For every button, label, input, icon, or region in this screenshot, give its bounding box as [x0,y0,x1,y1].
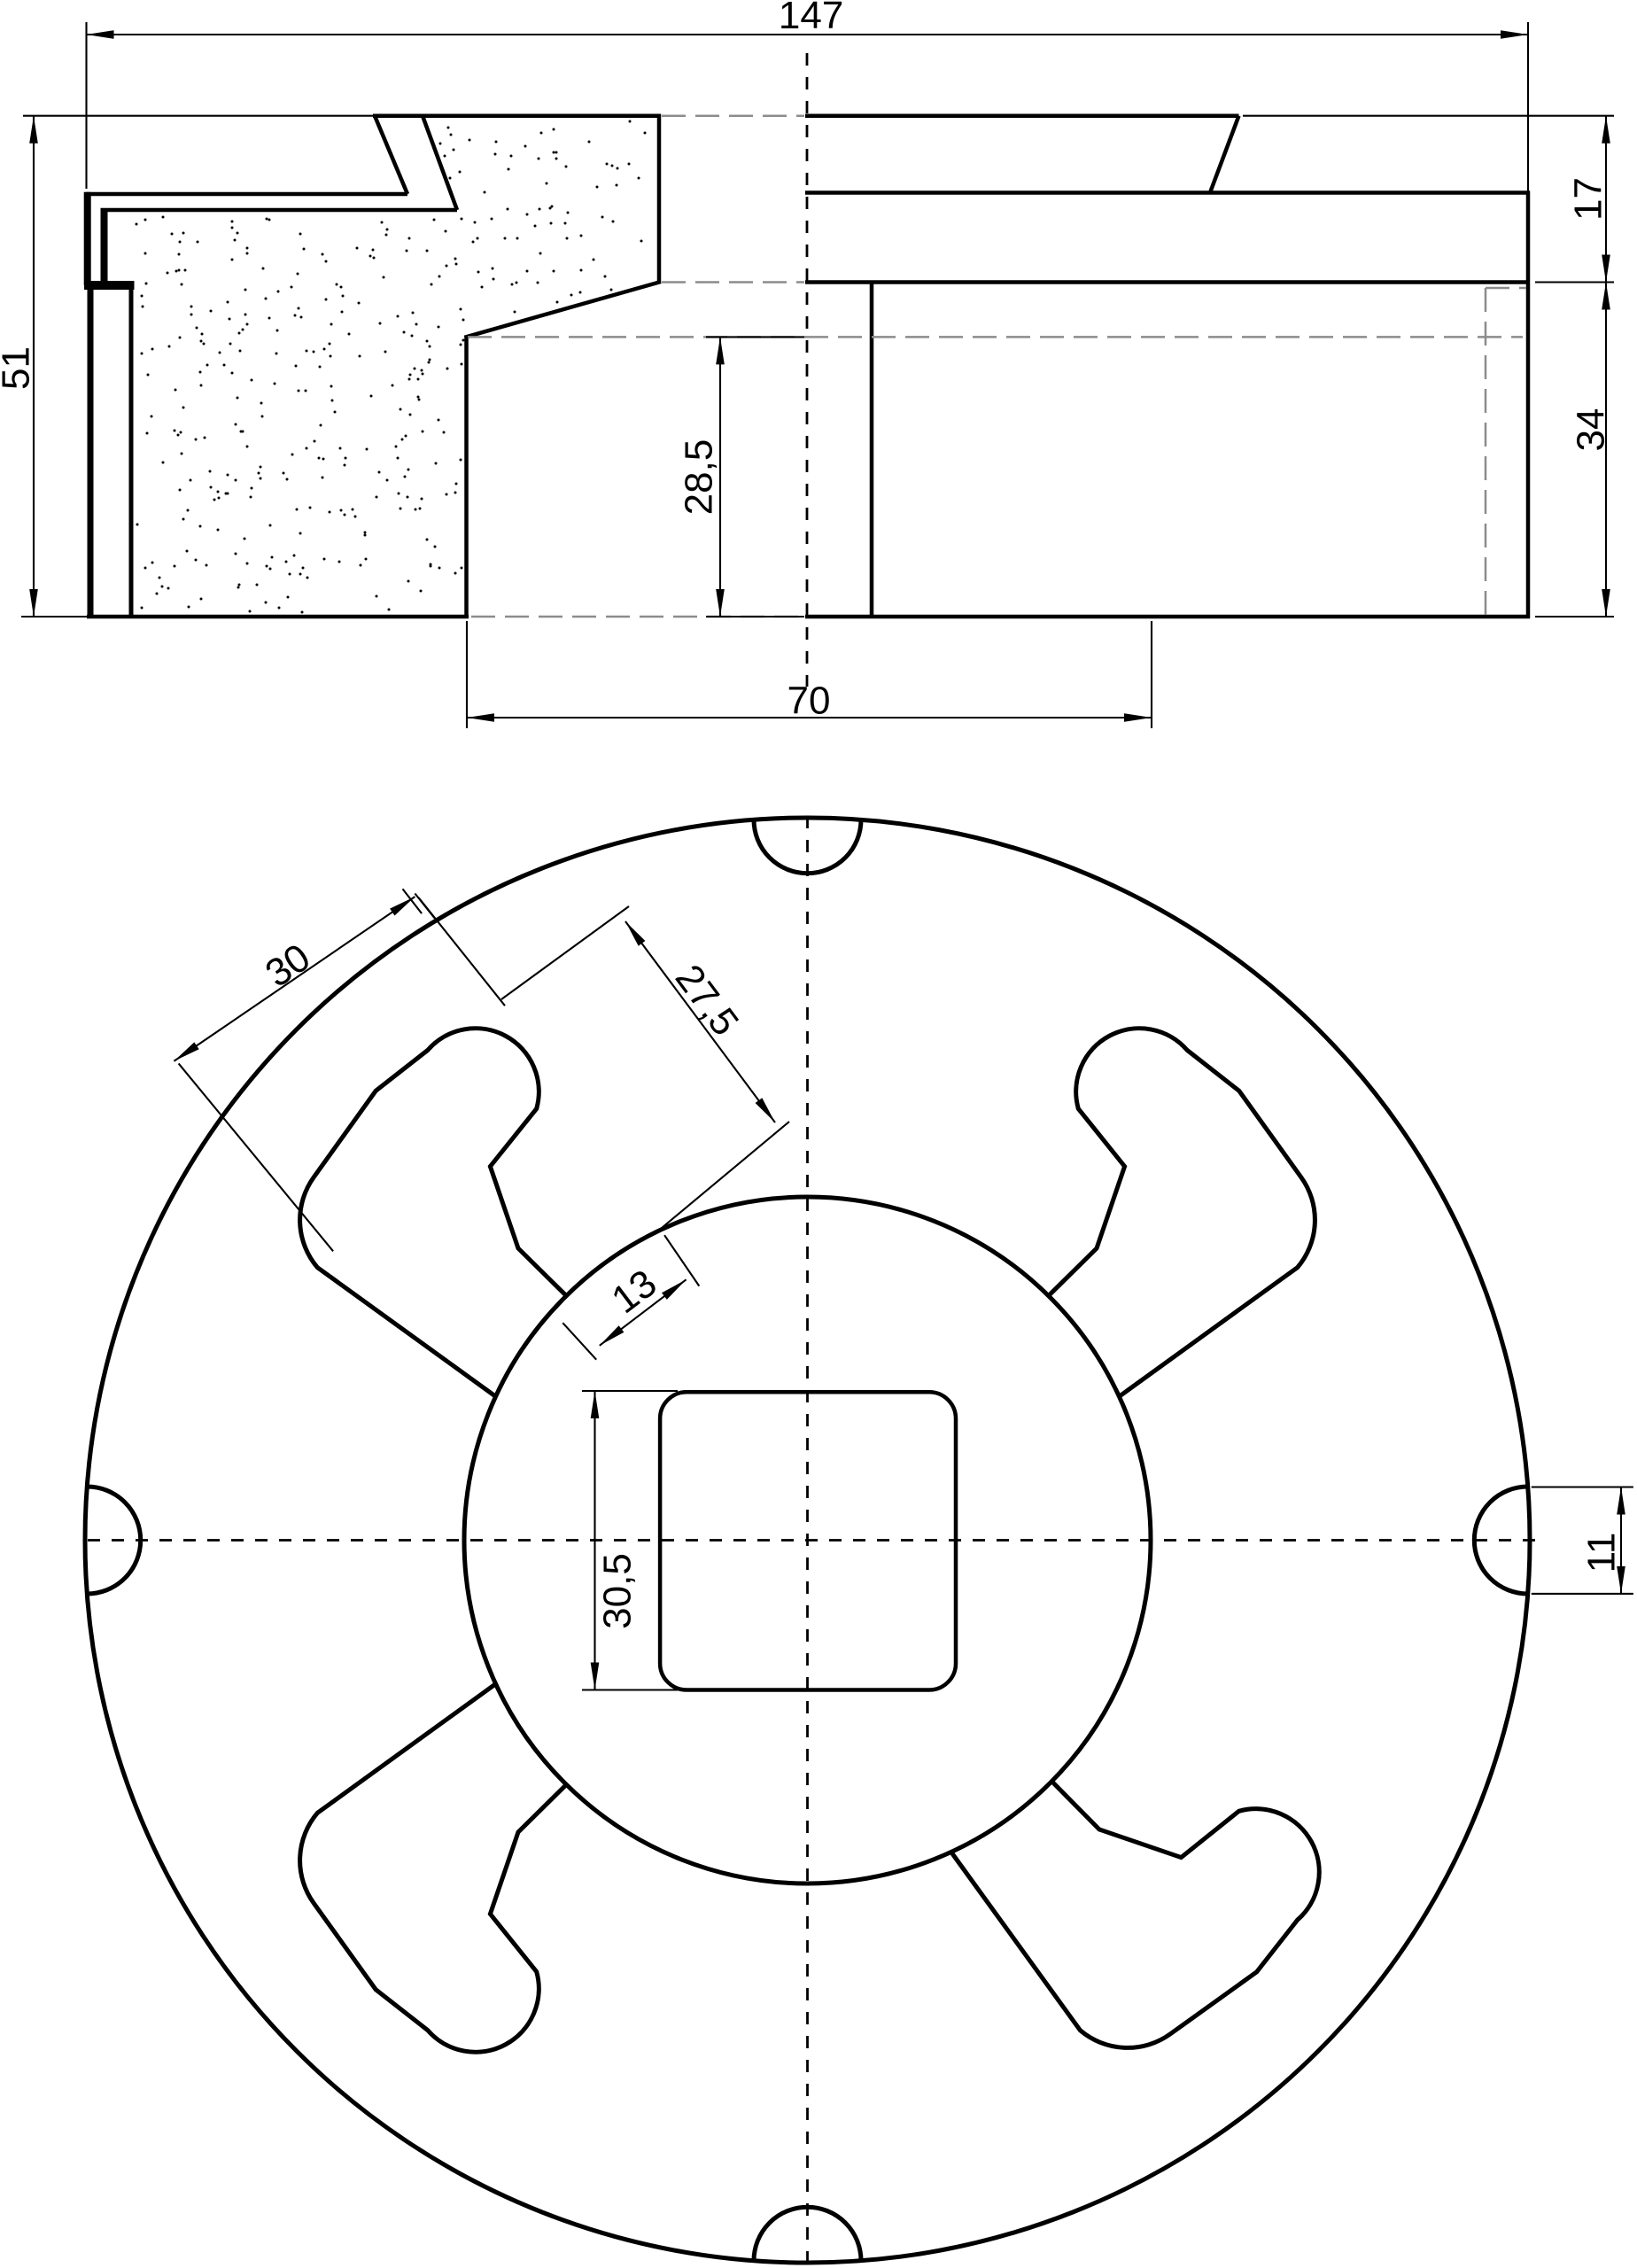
svg-text:70: 70 [787,680,831,723]
svg-text:51: 51 [0,346,38,390]
svg-text:28,5: 28,5 [678,439,721,516]
svg-text:147: 147 [779,0,843,37]
svg-text:30,5: 30,5 [596,1553,640,1629]
svg-text:34: 34 [1570,408,1613,452]
svg-text:17: 17 [1567,177,1610,221]
svg-text:11: 11 [1580,1533,1624,1573]
